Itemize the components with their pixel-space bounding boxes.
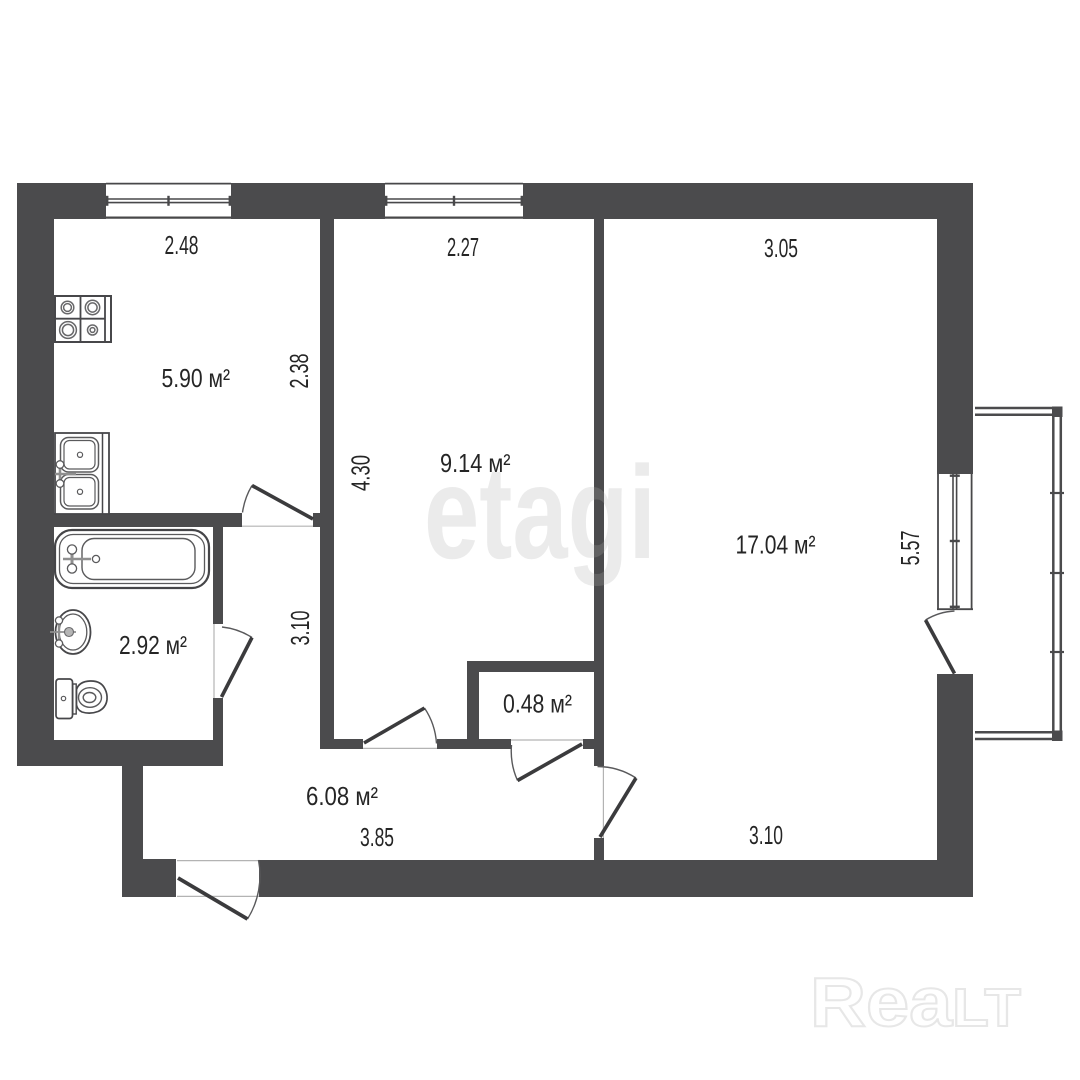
svg-text:etagi: etagi [424,439,656,586]
svg-text:6.08 м²: 6.08 м² [306,781,378,811]
svg-text:2.38: 2.38 [284,354,314,389]
svg-text:3.10: 3.10 [749,820,783,850]
svg-text:3.05: 3.05 [764,233,798,263]
svg-text:2.48: 2.48 [165,230,199,260]
svg-text:0.48 м²: 0.48 м² [503,689,572,719]
svg-text:4.30: 4.30 [346,455,376,491]
svg-text:5.90 м²: 5.90 м² [162,363,231,393]
svg-text:2.27: 2.27 [447,232,479,262]
svg-text:2.92 м²: 2.92 м² [119,630,187,660]
svg-text:17.04 м²: 17.04 м² [736,530,816,560]
svg-text:5.57: 5.57 [895,531,925,566]
svg-text:3.85: 3.85 [360,822,394,852]
svg-text:3.10: 3.10 [285,611,315,646]
